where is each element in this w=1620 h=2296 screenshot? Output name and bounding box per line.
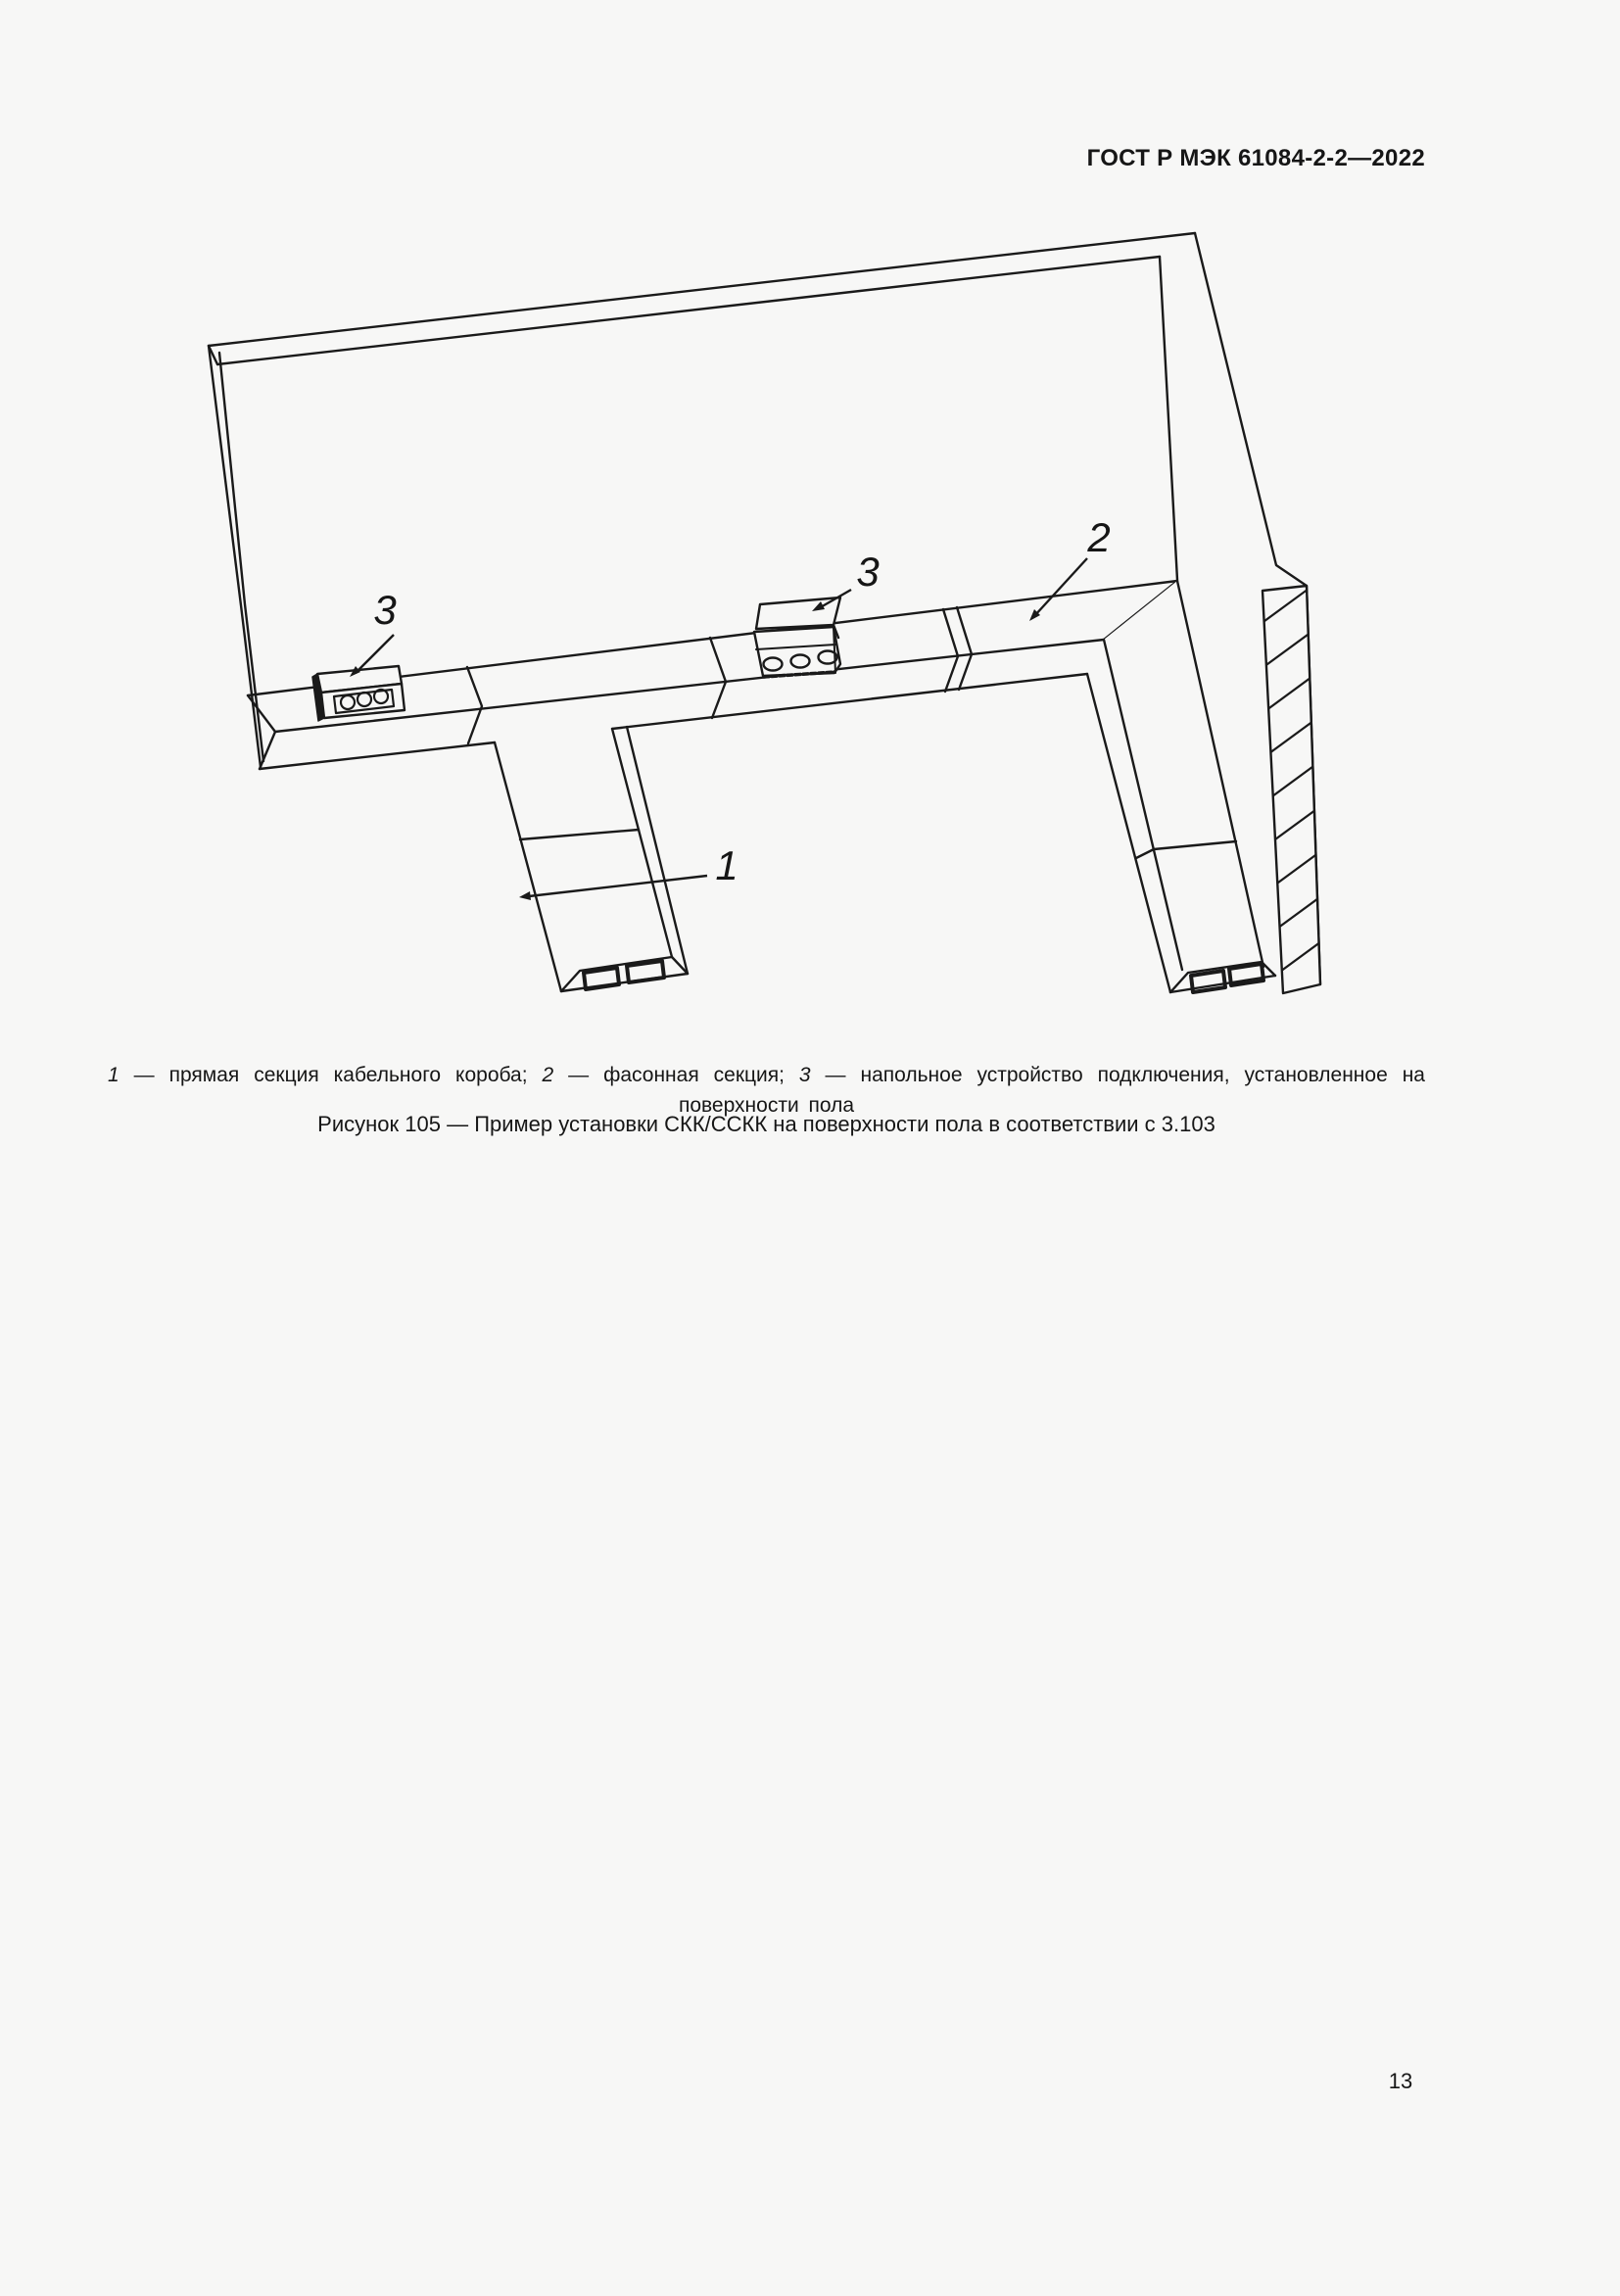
callout-label-3-middle: 3 xyxy=(856,549,879,595)
trunking-branch-right xyxy=(1087,581,1275,992)
floor-outlet-box-middle xyxy=(754,598,840,677)
figure-105-drawing: 3 3 2 1 xyxy=(0,0,1620,2291)
isometric-trunking-drawing: 3 3 2 1 xyxy=(0,0,1620,2291)
callout-2: 2 xyxy=(1029,514,1111,621)
callout-label-2: 2 xyxy=(1086,514,1110,560)
legend-item-3-number: 3 xyxy=(799,1064,811,1086)
callout-1: 1 xyxy=(519,842,739,900)
legend-item-2-text: — фасонная секция; xyxy=(553,1064,799,1086)
callout-label-3-left: 3 xyxy=(373,587,396,633)
trunking-branch-front xyxy=(495,727,688,991)
callout-3-left: 3 xyxy=(350,587,397,677)
floor-outlet-box-left xyxy=(312,666,405,721)
wall-section-hatch xyxy=(1246,570,1360,1023)
callout-label-1: 1 xyxy=(715,842,738,888)
legend-item-2-number: 2 xyxy=(543,1064,554,1086)
legend-item-1-number: 1 xyxy=(108,1064,119,1086)
legend-item-1-text: — прямая секция кабельного короба; xyxy=(119,1064,543,1086)
arrowhead-icon xyxy=(519,891,531,900)
page-number: 13 xyxy=(1371,2069,1430,2094)
figure-caption: Рисунок 105 — Пример установки СКК/ССКК … xyxy=(108,1112,1425,1137)
